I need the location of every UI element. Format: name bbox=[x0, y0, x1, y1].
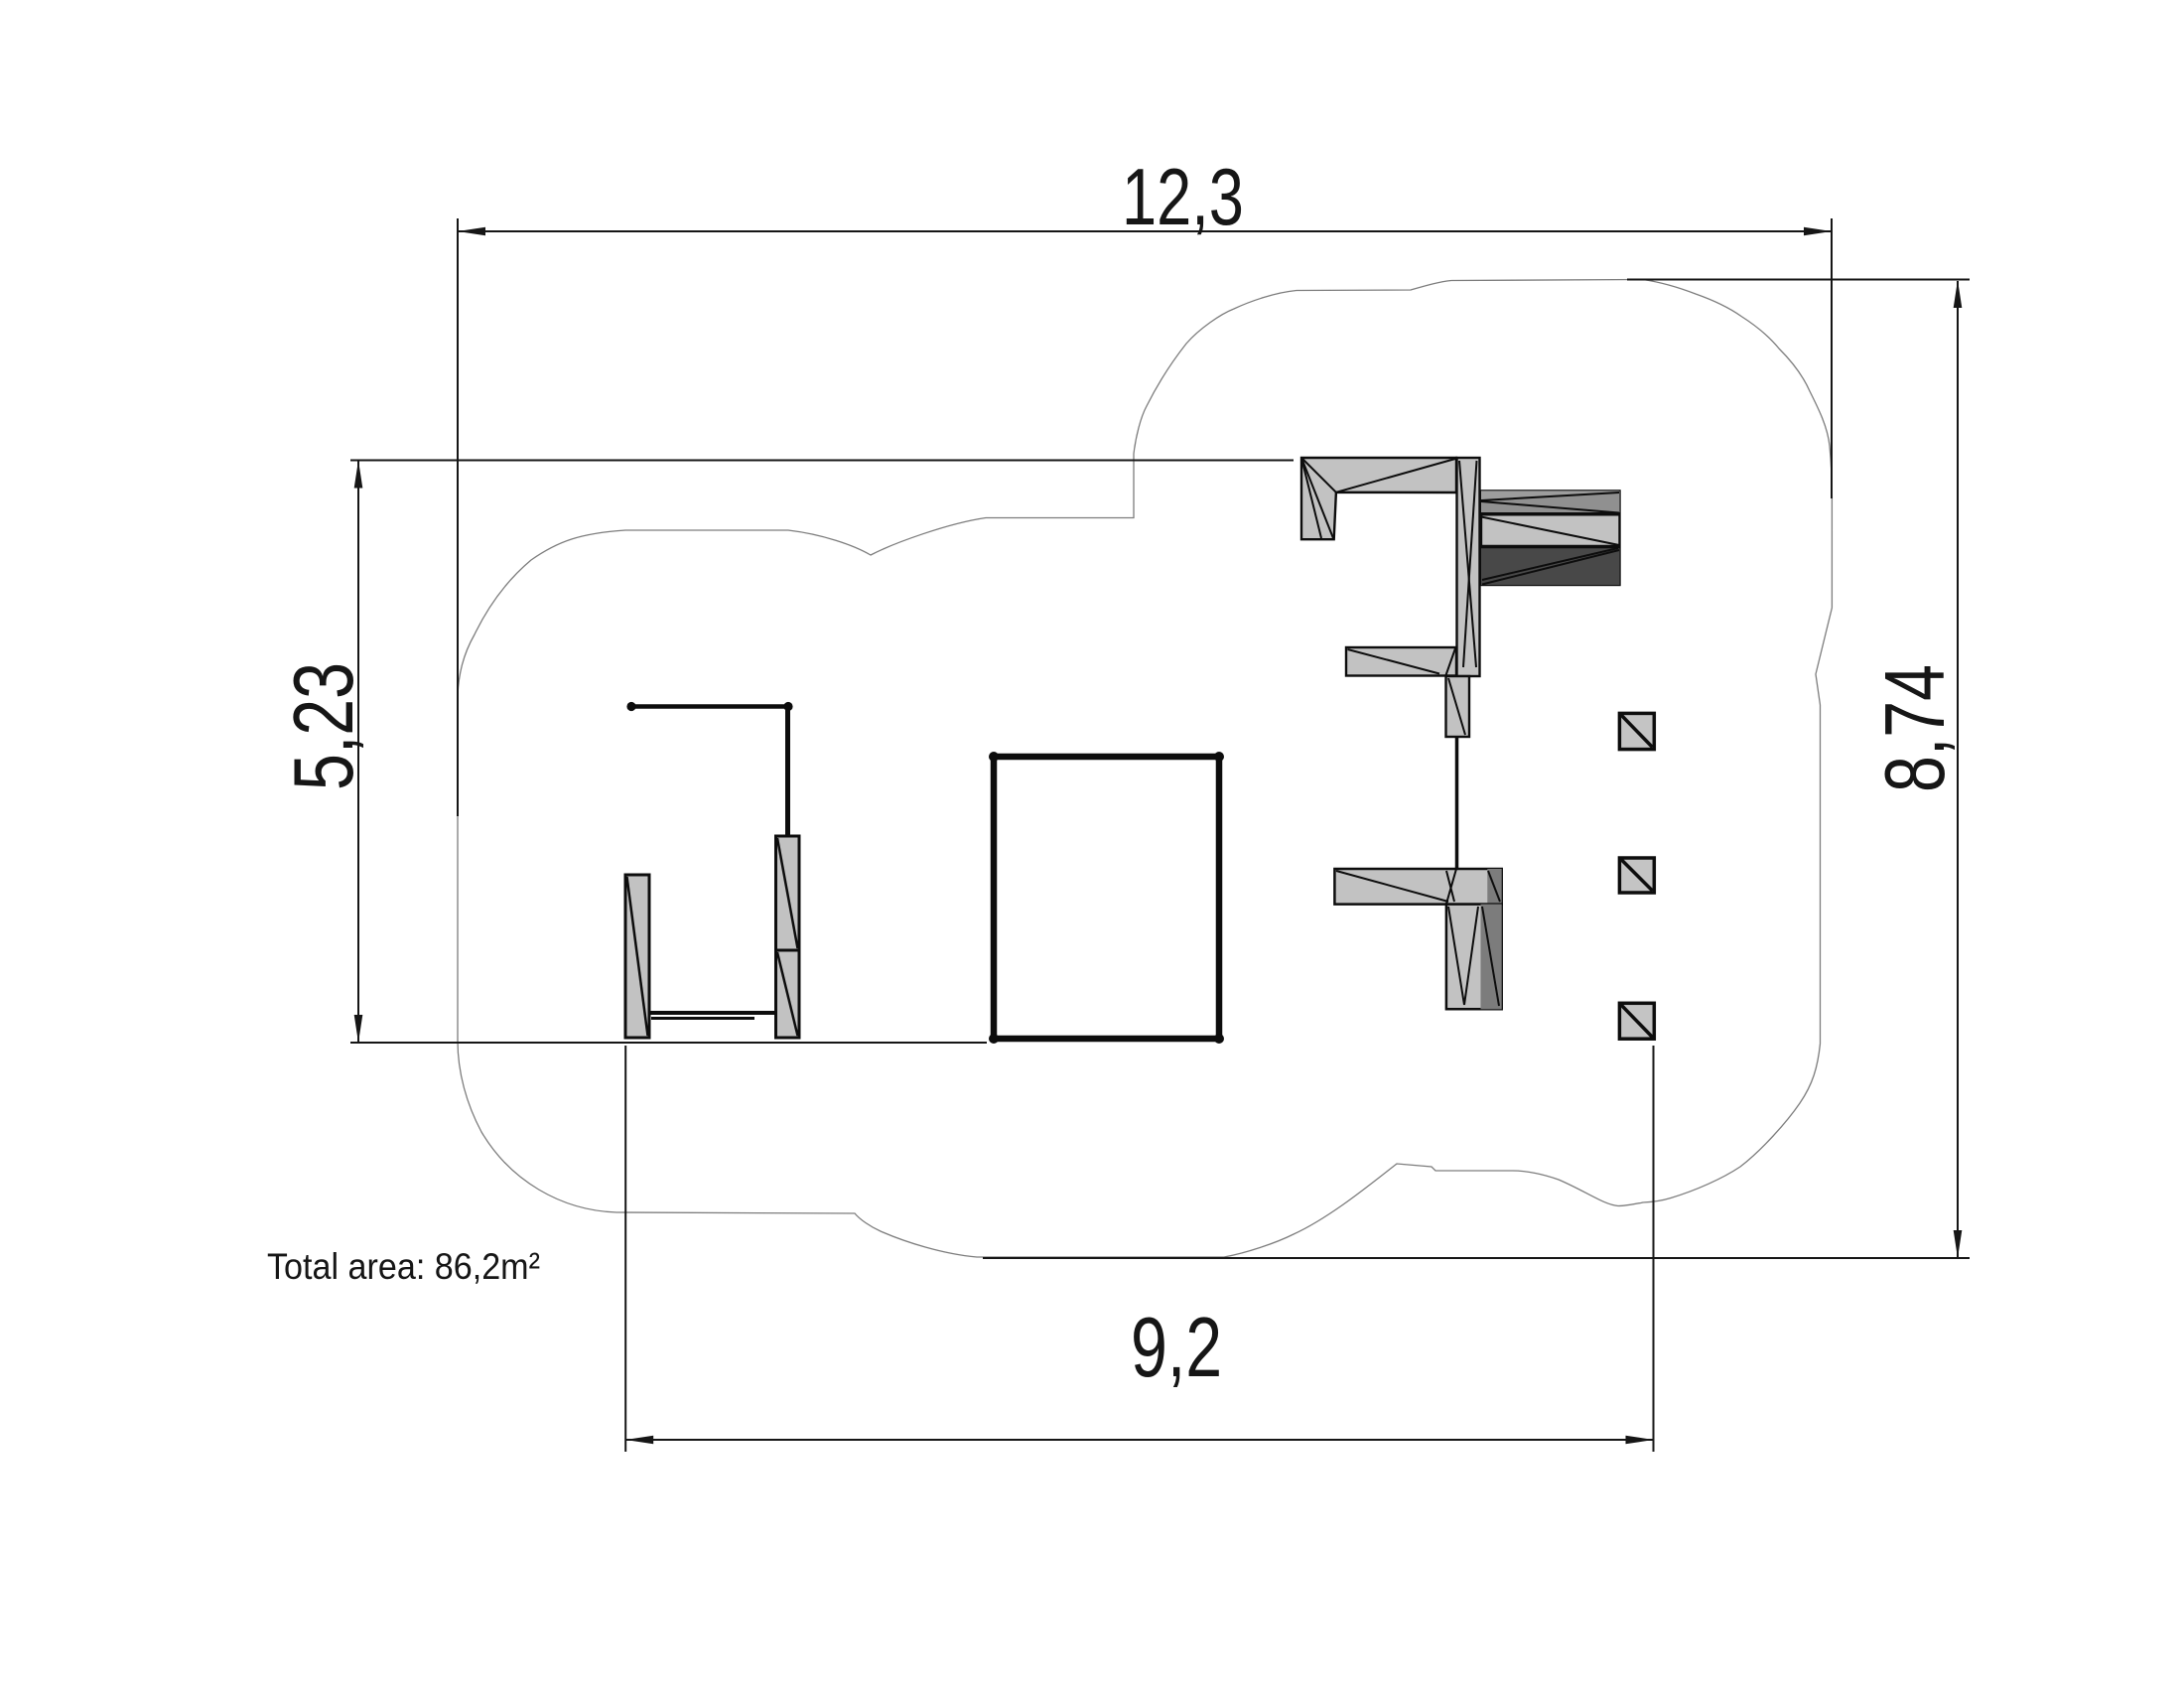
svg-text:9,2: 9,2 bbox=[1131, 1301, 1222, 1395]
svg-text:12,3: 12,3 bbox=[1122, 153, 1244, 242]
svg-text:Total area: 86,2m²: Total area: 86,2m² bbox=[267, 1246, 540, 1288]
svg-text:5,23: 5,23 bbox=[277, 662, 371, 790]
svg-text:8,74: 8,74 bbox=[1868, 664, 1963, 792]
